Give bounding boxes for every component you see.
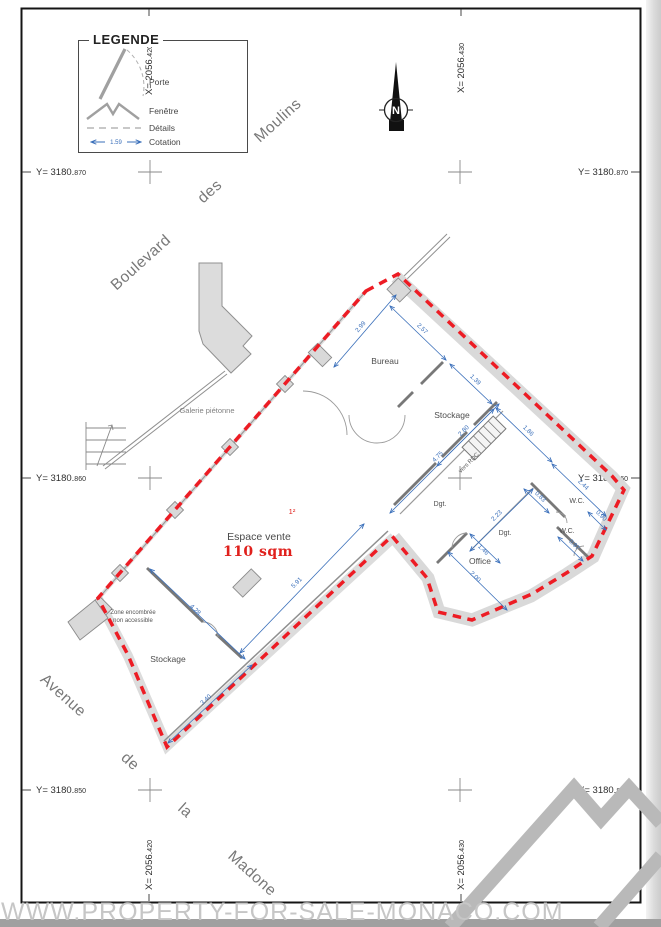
room-label-wc: W.C. bbox=[569, 498, 584, 505]
door-arc bbox=[349, 415, 377, 443]
zone-note-line1: Zone encombrée bbox=[110, 610, 156, 616]
street-label: la bbox=[174, 800, 195, 821]
gallery-stairs bbox=[86, 422, 126, 470]
dimension-label: 4.75 bbox=[431, 450, 445, 464]
legend-sample-dim: 1.59 bbox=[110, 140, 122, 146]
wall-line-sales-edge bbox=[164, 531, 388, 741]
legend-item-fenetre: Fenêtre bbox=[149, 106, 179, 116]
door-swing-symbol bbox=[127, 50, 144, 96]
y-coordinate-label: Y= 3180.860 bbox=[36, 473, 86, 484]
column-pillar bbox=[233, 569, 261, 597]
room-label-stockage: Stockage bbox=[150, 654, 186, 664]
legend-title: LEGENDE bbox=[89, 32, 163, 47]
room-label-dgt: Dgt. bbox=[499, 530, 512, 537]
room-label-dgt: Dgt. bbox=[434, 501, 447, 508]
street-label: de bbox=[118, 749, 143, 774]
gallery-label: Galerie piétonne bbox=[179, 406, 234, 415]
legend-item-porte: Porte bbox=[149, 77, 170, 87]
sales-area-size: 110 sqm bbox=[223, 544, 293, 560]
logo-roofline-2 bbox=[599, 856, 661, 927]
door-leaf-symbol bbox=[100, 49, 125, 99]
door-arc bbox=[377, 415, 405, 443]
zone-note-line2: non accessible bbox=[113, 618, 153, 624]
room-label-stockage: Stockage bbox=[434, 410, 470, 420]
floor-plan-page: Y= 3180.870 Y= 3180.870 Y= 3180.860 Y= 3… bbox=[0, 0, 661, 927]
y-coordinate-label: Y= 3180.870 bbox=[578, 167, 628, 178]
cross-marker bbox=[138, 160, 162, 184]
dimension-label: 0.83 bbox=[533, 490, 547, 504]
sales-area-marker: 1² bbox=[289, 507, 296, 516]
wall-band-lower-wing bbox=[98, 537, 394, 746]
street-label: Madone bbox=[224, 848, 279, 900]
dimension-label: 2.99 bbox=[354, 320, 368, 334]
dimension-line bbox=[450, 364, 492, 404]
dimension-line bbox=[168, 665, 252, 743]
legend-symbols: 1.59 Porte Fenêtre Détails Cotation bbox=[79, 41, 244, 149]
x-coordinate-label: X= 2056.430 bbox=[456, 840, 467, 890]
wall-band-right-wing bbox=[394, 277, 623, 620]
staircase bbox=[462, 416, 506, 460]
dimension-label: 2.57 bbox=[415, 322, 429, 336]
legend-box: LEGENDE 1.59 Porte Fenêtre Détails Cotat… bbox=[78, 40, 248, 153]
cross-marker bbox=[138, 466, 162, 490]
room-label-wc: W.C. bbox=[559, 528, 574, 535]
dimension-labels: 2.99 2.57 1.39 1.86 2.44 0.83 0.90 0.97 … bbox=[188, 320, 608, 707]
wall-bureau-stockage bbox=[398, 362, 443, 407]
dimension-label: 2.00 bbox=[468, 570, 482, 584]
y-coordinate-label: Y= 3180.850 bbox=[36, 785, 86, 796]
street-names: Boulevard des Moulins Avenue de la Madon… bbox=[37, 95, 305, 899]
dimension-label: 2.23 bbox=[490, 509, 504, 523]
window-symbol bbox=[87, 104, 139, 119]
dimension-line bbox=[390, 409, 494, 513]
dimension-label: 1.46 bbox=[476, 543, 490, 557]
cross-marker bbox=[448, 160, 472, 184]
dimension-label: 5.91 bbox=[290, 576, 304, 590]
x-coordinate-label: X= 2056.430 bbox=[456, 43, 467, 93]
door-arc bbox=[556, 512, 567, 523]
street-label: Avenue bbox=[37, 671, 89, 721]
neighbor-building bbox=[199, 263, 252, 373]
legend-item-details: Détails bbox=[149, 123, 175, 133]
room-label-bureau: Bureau bbox=[371, 356, 399, 366]
dimension-label: 1.39 bbox=[468, 373, 482, 387]
sales-area-label: Espace vente bbox=[227, 531, 291, 543]
north-arrow: N bbox=[379, 62, 413, 131]
watermark-text: WWW.PROPERTY-FOR-SALE-MONACO.COM bbox=[1, 898, 564, 927]
street-label: Moulins bbox=[251, 95, 305, 146]
street-label: des bbox=[194, 176, 225, 206]
north-letter: N bbox=[392, 105, 400, 117]
dimension-label: 2.80 bbox=[457, 424, 471, 438]
door-arc bbox=[303, 391, 347, 435]
y-coordinate-label: Y= 3180.870 bbox=[36, 167, 86, 178]
legend-item-cotation: Cotation bbox=[149, 137, 181, 147]
dimension-line bbox=[470, 489, 533, 551]
street-label: Boulevard bbox=[108, 231, 175, 293]
cross-marker bbox=[138, 778, 162, 802]
dimension-label: 1.86 bbox=[521, 424, 535, 438]
room-label-office: Office bbox=[469, 556, 491, 566]
x-coordinate-label: X= 2056.420 bbox=[144, 840, 155, 890]
wall-block bbox=[308, 343, 331, 366]
cross-marker bbox=[448, 778, 472, 802]
